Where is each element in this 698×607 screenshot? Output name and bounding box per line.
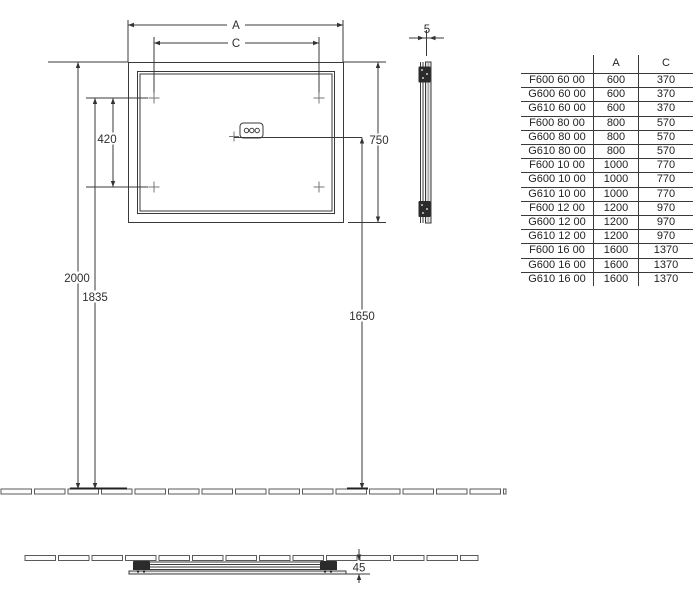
c-cell: 1370 — [639, 244, 694, 258]
model-cell: G610 10 00 — [521, 187, 594, 201]
dimension-C: C — [154, 38, 319, 51]
mirror-outer-frame — [129, 63, 344, 223]
a-cell: 1600 — [594, 258, 639, 272]
table-row: G600 60 00600370 — [521, 88, 693, 102]
header-c: C — [639, 55, 694, 74]
table-header-row: A C — [521, 55, 693, 74]
dimension-750: 750 — [364, 62, 394, 223]
table-row: F600 80 00800570 — [521, 116, 693, 130]
dimension-1650: 1650 — [346, 138, 378, 490]
a-cell: 800 — [594, 130, 639, 144]
a-cell: 1600 — [594, 272, 639, 286]
model-cell: F600 12 00 — [521, 201, 594, 215]
table-row: G610 12 001200970 — [521, 230, 693, 244]
a-cell: 800 — [594, 116, 639, 130]
model-cell: F600 80 00 — [521, 116, 594, 130]
a-cell: 600 — [594, 88, 639, 102]
table-row: G600 80 00800570 — [521, 130, 693, 144]
a-cell: 600 — [594, 74, 639, 88]
wall-line — [25, 556, 478, 561]
dim-750-label: 750 — [369, 135, 388, 147]
table-row: F600 16 0016001370 — [521, 244, 693, 258]
model-cell: G600 80 00 — [521, 130, 594, 144]
model-cell: F600 10 00 — [521, 159, 594, 173]
table-row: F600 10 001000770 — [521, 159, 693, 173]
dimension-A: A — [128, 20, 343, 33]
a-cell: 1000 — [594, 159, 639, 173]
c-cell: 370 — [639, 88, 694, 102]
model-cell: G610 12 00 — [521, 230, 594, 244]
mounting-hole-markers — [149, 93, 325, 193]
model-cell: F600 60 00 — [521, 74, 594, 88]
control-switch — [229, 123, 263, 142]
table-row: G610 10 001000770 — [521, 187, 693, 201]
c-cell: 970 — [639, 201, 694, 215]
c-cell: 570 — [639, 116, 694, 130]
dim-45-label: 45 — [353, 563, 366, 575]
c-cell: 370 — [639, 74, 694, 88]
table-row: G600 12 001200970 — [521, 216, 693, 230]
a-cell: 600 — [594, 102, 639, 116]
table-row: G600 10 001000770 — [521, 173, 693, 187]
c-cell: 770 — [639, 173, 694, 187]
model-cell: G600 16 00 — [521, 258, 594, 272]
c-cell: 570 — [639, 130, 694, 144]
model-cell: G600 12 00 — [521, 216, 594, 230]
dim-420-label: 420 — [97, 134, 116, 146]
dim-2000-label: 2000 — [64, 273, 90, 285]
a-cell: 800 — [594, 145, 639, 159]
model-cell: G600 10 00 — [521, 173, 594, 187]
side-view: 5 — [409, 24, 444, 223]
dim-1650-label: 1650 — [349, 311, 375, 323]
technical-drawing-page: A C 420 750 2000 1835 — [0, 0, 698, 607]
c-cell: 1370 — [639, 258, 694, 272]
topview-bracket-left — [133, 561, 150, 570]
c-cell: 570 — [639, 145, 694, 159]
model-cell: G610 60 00 — [521, 102, 594, 116]
dimension-45: 45 — [346, 549, 370, 583]
table-row: G610 16 0016001370 — [521, 272, 693, 286]
c-cell: 770 — [639, 159, 694, 173]
c-cell: 970 — [639, 216, 694, 230]
a-cell: 1200 — [594, 230, 639, 244]
dimension-420: 420 — [92, 98, 123, 187]
a-cell: 1600 — [594, 244, 639, 258]
model-cell: F600 16 00 — [521, 244, 594, 258]
bottom-view: 45 — [25, 549, 478, 583]
c-cell: 370 — [639, 102, 694, 116]
table-row: G600 16 0016001370 — [521, 258, 693, 272]
c-cell: 770 — [639, 187, 694, 201]
mirror-inner-frame — [138, 72, 335, 214]
dim-a-label: A — [232, 20, 240, 32]
topview-glass — [129, 571, 346, 574]
c-cell: 970 — [639, 230, 694, 244]
c-cell: 1370 — [639, 272, 694, 286]
dim-1835-label: 1835 — [82, 292, 108, 304]
spec-table: A C F600 60 00600370 G600 60 00600370 G6… — [521, 55, 693, 286]
side-bracket-bottom — [419, 201, 431, 217]
model-cell: G610 16 00 — [521, 272, 594, 286]
model-cell: G600 60 00 — [521, 88, 594, 102]
header-a: A — [594, 55, 639, 74]
table-row: F600 12 001200970 — [521, 201, 693, 215]
front-view — [48, 20, 386, 223]
table-row: F600 60 00600370 — [521, 74, 693, 88]
a-cell: 1200 — [594, 201, 639, 215]
dimension-1835: 1835 — [79, 98, 111, 489]
dimension-5: 5 — [409, 24, 444, 56]
a-cell: 1000 — [594, 187, 639, 201]
table-row: G610 80 00800570 — [521, 145, 693, 159]
header-model — [521, 55, 594, 74]
dimension-2000: 2000 — [61, 62, 93, 489]
floor-line — [1, 489, 506, 494]
side-bracket-top — [419, 67, 431, 83]
a-cell: 1200 — [594, 216, 639, 230]
dim-c-label: C — [232, 38, 240, 50]
model-cell: G610 80 00 — [521, 145, 594, 159]
a-cell: 1000 — [594, 173, 639, 187]
topview-bracket-right — [320, 561, 337, 570]
table-row: G610 60 00600370 — [521, 102, 693, 116]
mirror-glass-edge — [140, 74, 332, 211]
